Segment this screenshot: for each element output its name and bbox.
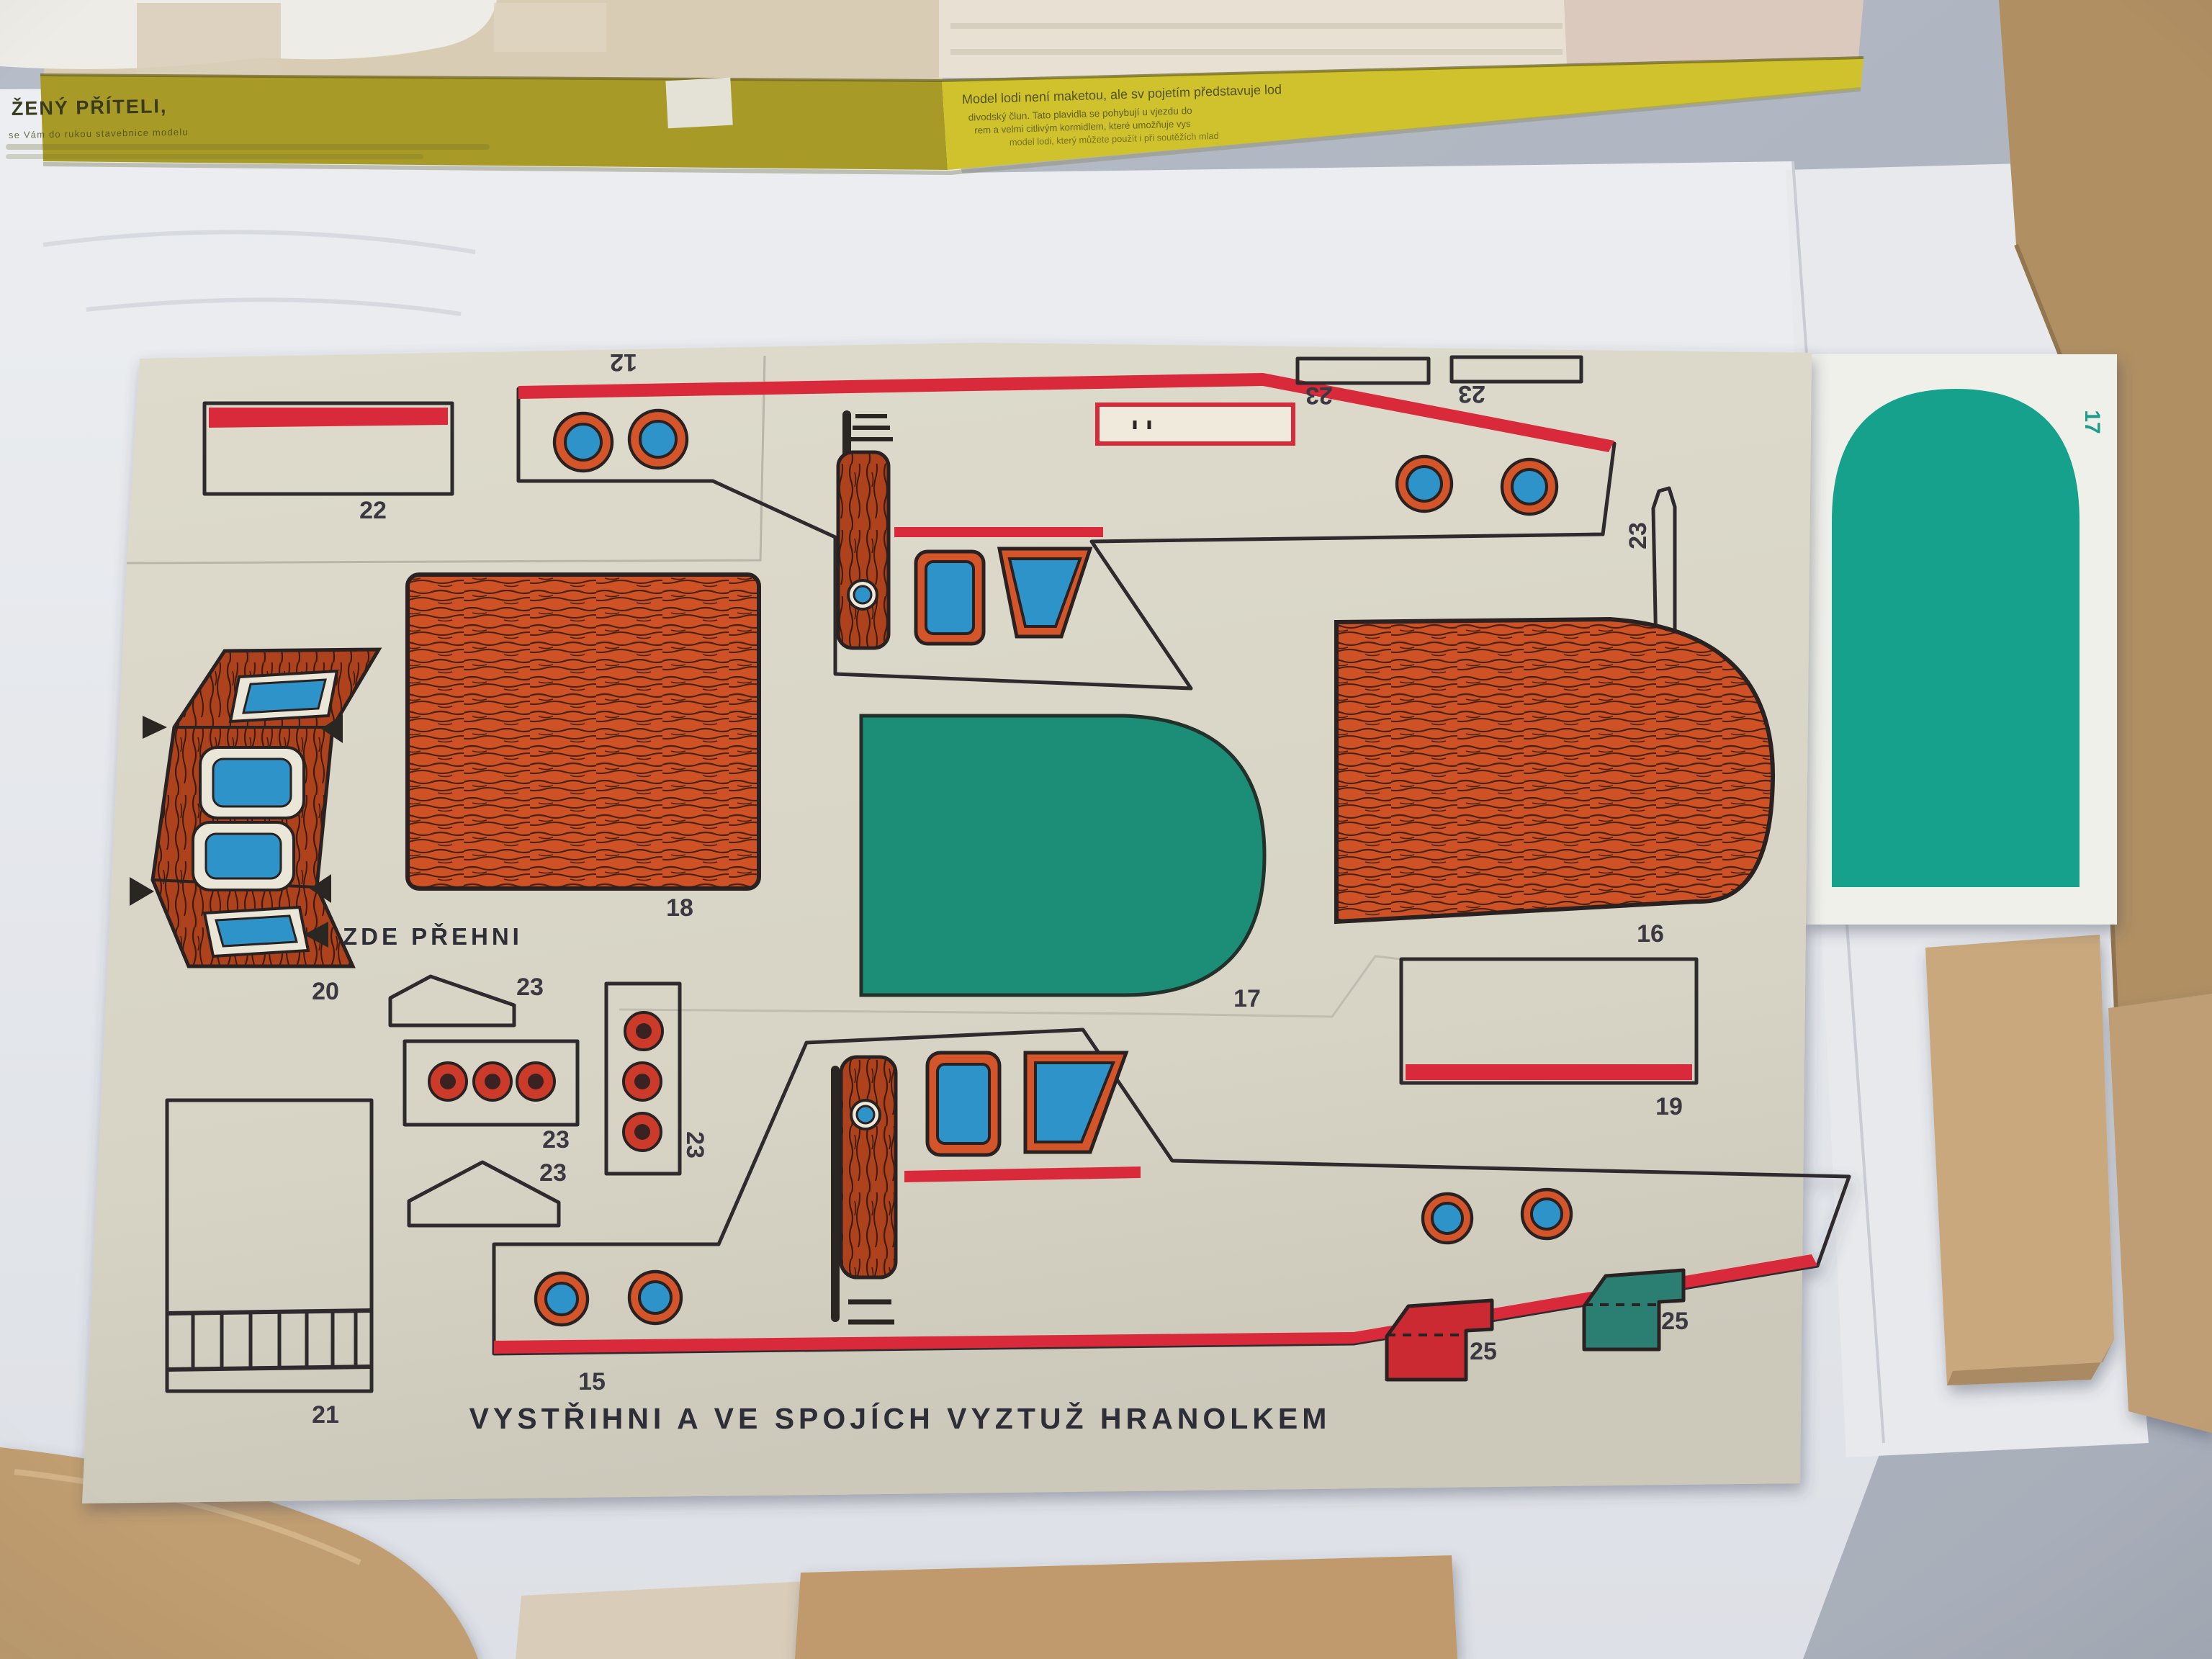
photo-vignette [0,0,2212,1659]
photo-paper-model-sheet: ŽENÝ PŘÍTELI, se Vám do rukou stavebnice… [0,0,2212,1659]
